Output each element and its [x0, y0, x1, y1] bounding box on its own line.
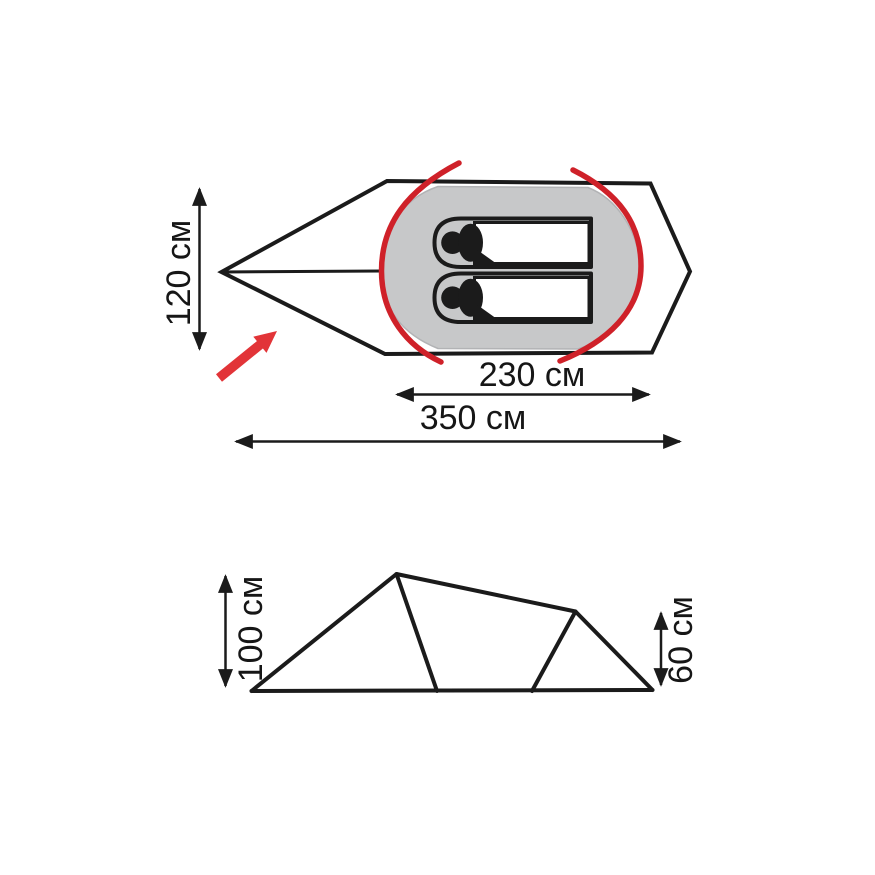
entrance-arrow-icon	[216, 331, 277, 382]
dimension-label-120: 120 см	[160, 220, 198, 327]
dimension-label-350: 350 см	[420, 399, 527, 437]
dimension-rear-height: 60 см	[661, 596, 700, 685]
side-view: 100 см 60 см	[226, 574, 701, 691]
sleeping-bag	[475, 278, 590, 319]
tent-dimension-diagram: 120 см 230 см 350 см 100 см	[0, 0, 875, 875]
center-seam-line	[222, 271, 384, 272]
sleeping-pad-1	[435, 219, 592, 268]
dimension-label-60: 60 см	[662, 596, 700, 684]
dimension-label-100: 100 см	[232, 576, 270, 683]
dimension-label-230: 230 см	[479, 356, 586, 394]
dimension-total-length: 350 см	[236, 399, 680, 442]
sleeping-pad-2	[435, 274, 592, 323]
side-strut-rear	[532, 612, 576, 692]
dimension-width: 120 см	[160, 189, 200, 349]
diagram-canvas: 120 см 230 см 350 см 100 см	[0, 0, 875, 875]
dimension-peak-height: 100 см	[226, 576, 271, 686]
sleeping-bag	[475, 223, 590, 264]
top-view: 120 см 230 см 350 см	[160, 163, 690, 442]
side-strut-front	[397, 574, 438, 691]
side-profile-outline	[252, 574, 653, 691]
